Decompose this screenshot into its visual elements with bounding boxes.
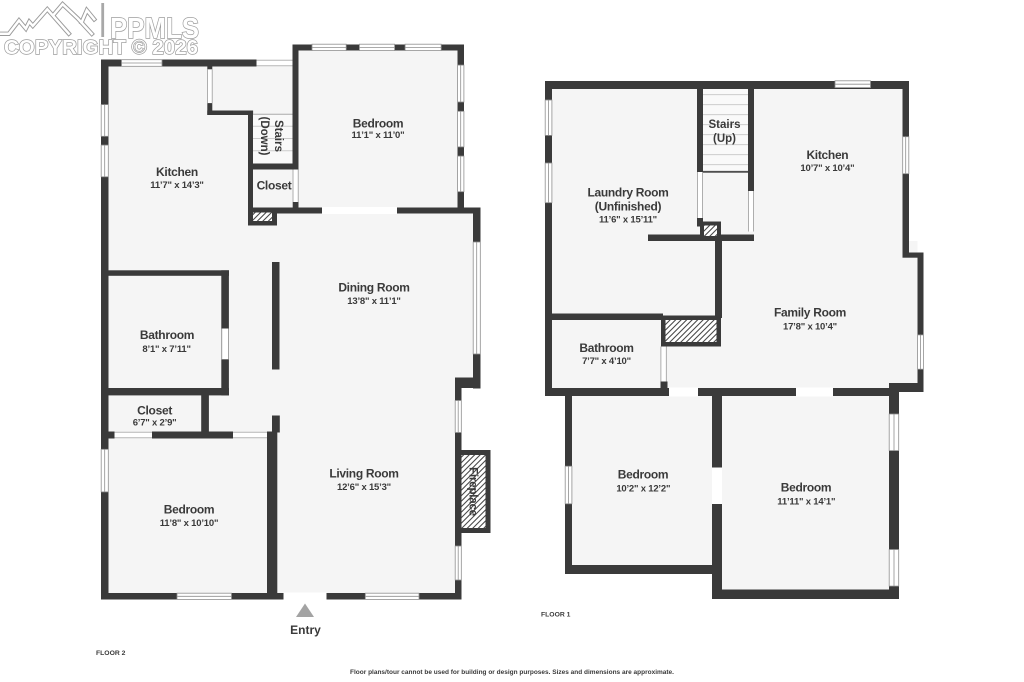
svg-text:FLOOR 2: FLOOR 2 [96, 650, 126, 657]
svg-text:Family Room: Family Room [774, 306, 846, 320]
svg-text:Bathroom: Bathroom [140, 328, 194, 342]
svg-text:Dining Room: Dining Room [338, 281, 409, 295]
svg-text:11’1" x 11’0": 11’1" x 11’0" [352, 130, 405, 141]
svg-text:COPYRIGHT © 2026: COPYRIGHT © 2026 [4, 37, 198, 59]
svg-text:11’6" x 15’11": 11’6" x 15’11" [599, 215, 657, 226]
svg-text:Stairs: Stairs [709, 119, 741, 131]
svg-text:Bedroom: Bedroom [781, 481, 832, 495]
svg-text:17’8" x 10’4": 17’8" x 10’4" [783, 321, 837, 332]
svg-text:Closet: Closet [257, 179, 292, 193]
svg-text:11’7" x 14’3": 11’7" x 14’3" [150, 180, 203, 191]
svg-text:11’11" x 14’1": 11’11" x 14’1" [777, 496, 835, 507]
svg-text:(Unfinished): (Unfinished) [595, 200, 662, 214]
svg-text:FLOOR 1: FLOOR 1 [541, 612, 571, 619]
svg-text:Kitchen: Kitchen [806, 148, 848, 162]
svg-text:11’8" x 10’10": 11’8" x 10’10" [160, 518, 219, 529]
svg-text:Bathroom: Bathroom [579, 341, 633, 355]
svg-text:Living Room: Living Room [329, 467, 398, 481]
svg-text:6’7" x 2’9": 6’7" x 2’9" [133, 418, 177, 429]
svg-text:10’7" x 10’4": 10’7" x 10’4" [800, 163, 854, 174]
svg-text:7’7" x 4’10": 7’7" x 4’10" [582, 356, 631, 367]
svg-text:8’1" x 7’11": 8’1" x 7’11" [142, 344, 190, 355]
svg-text:Fireplace: Fireplace [466, 467, 478, 516]
svg-text:Laundry Room: Laundry Room [587, 185, 668, 199]
svg-text:Kitchen: Kitchen [156, 165, 198, 179]
svg-text:Closet: Closet [137, 404, 172, 418]
svg-text:13’8" x 11’1": 13’8" x 11’1" [347, 296, 400, 307]
svg-text:Floor plans/tour cannot be use: Floor plans/tour cannot be used for buil… [350, 669, 674, 676]
svg-text:Entry: Entry [290, 623, 321, 637]
svg-text:10’2" x 12’2": 10’2" x 12’2" [616, 483, 670, 494]
svg-text:Bedroom: Bedroom [618, 468, 669, 482]
svg-text:(Up): (Up) [713, 133, 736, 145]
svg-text:Bedroom: Bedroom [164, 503, 215, 517]
svg-text:Bedroom: Bedroom [353, 117, 404, 131]
svg-text:12’6" x 15’3": 12’6" x 15’3" [337, 482, 391, 493]
